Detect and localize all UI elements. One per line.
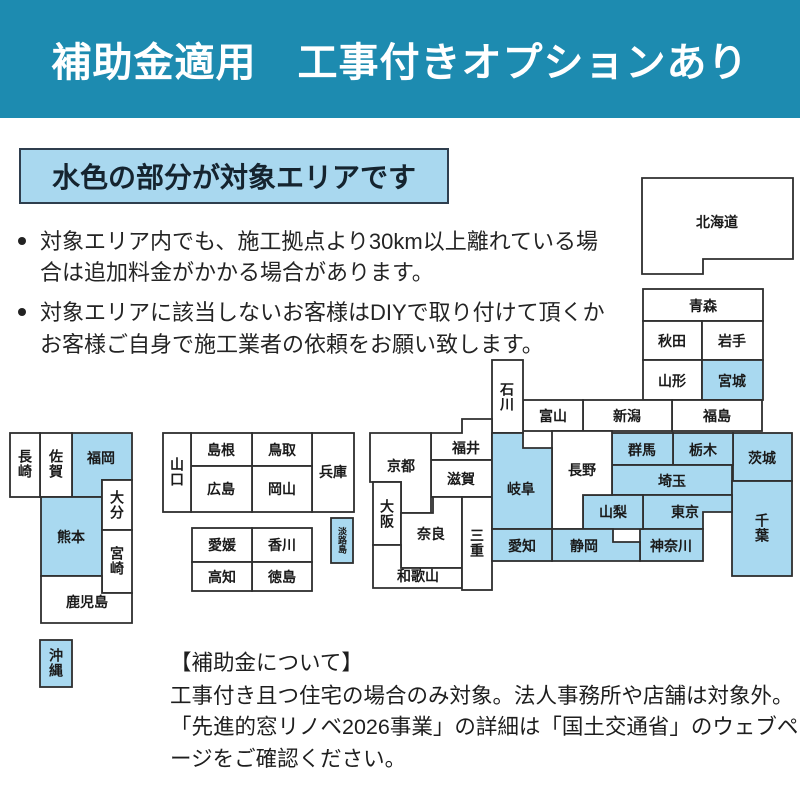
- pref-kochi: 高知: [192, 562, 252, 591]
- pref-ibaraki-label: 茨城: [748, 450, 776, 466]
- pref-yamagata: 山形: [643, 360, 702, 400]
- pref-kyoto-label: 京都: [387, 458, 415, 474]
- pref-osaka-label: 大阪: [379, 498, 395, 529]
- pref-nagasaki: 長崎: [10, 433, 40, 497]
- pref-tottori-label: 鳥取: [268, 442, 297, 458]
- pref-fukuoka-label: 福岡: [86, 450, 115, 466]
- pref-yamaguchi: 山口: [163, 433, 191, 512]
- pref-iwate: 岩手: [702, 321, 763, 360]
- pref-gifu-label: 岐阜: [507, 481, 535, 497]
- pref-shiga: 滋賀: [431, 460, 492, 497]
- subsidy-line: 工事付き且つ住宅の場合のみ対象。法人事務所や店舗は対象外。: [170, 681, 800, 713]
- pref-miyagi-label: 宮城: [718, 373, 746, 389]
- pref-kagoshima-label: 鹿児島: [65, 594, 108, 610]
- pref-ehime-label: 愛媛: [208, 537, 237, 553]
- pref-tokyo: 東京: [643, 495, 732, 529]
- pref-kochi-label: 高知: [208, 569, 236, 585]
- pref-yamagata-label: 山形: [658, 373, 686, 389]
- pref-tokyo-label: 東京: [671, 504, 699, 520]
- pref-chiba-label: 千葉: [754, 512, 770, 543]
- pref-iwate-label: 岩手: [717, 333, 746, 349]
- pref-hokkaido-label: 北海道: [696, 214, 738, 230]
- pref-gifu: 岐阜: [492, 433, 552, 529]
- pref-tokushima: 徳島: [252, 562, 312, 591]
- pref-mie: 三重: [462, 497, 492, 590]
- pref-okinawa-label: 沖縄: [48, 647, 64, 678]
- pref-niigata: 新潟: [583, 400, 672, 431]
- pref-yamanashi-label: 山梨: [599, 504, 628, 520]
- pref-osaka: 大阪: [373, 482, 401, 545]
- pref-kumamoto: 熊本: [41, 497, 102, 576]
- subsidy-heading: 【補助金について】: [170, 648, 800, 680]
- pref-saitama-label: 埼玉: [658, 473, 686, 489]
- pref-oita-label: 大分: [109, 489, 125, 520]
- pref-kagawa-label: 香川: [267, 537, 296, 553]
- pref-shizuoka: 静岡: [552, 529, 640, 561]
- pref-aichi: 愛知: [492, 529, 552, 561]
- pref-miyagi: 宮城: [702, 360, 763, 400]
- pref-oita: 大分: [102, 480, 132, 530]
- pref-kanagawa: 神奈川: [640, 529, 703, 561]
- pref-miyazaki: 宮崎: [102, 530, 132, 593]
- pref-tottori: 鳥取: [252, 433, 312, 466]
- pref-hyogo: 兵庫: [312, 433, 354, 512]
- pref-ehime: 愛媛: [192, 528, 252, 562]
- pref-nagasaki-label: 長崎: [17, 449, 33, 479]
- pref-shizuoka-label: 静岡: [570, 538, 598, 554]
- subsidy-line: 「先進的窓リノベ2026事業」の詳細は「国土交通省」のウェブページをご確認くださ…: [170, 712, 800, 775]
- pref-gunma: 群馬: [612, 433, 673, 465]
- pref-fukui-label: 福井: [451, 440, 480, 456]
- pref-fukushima: 福島: [672, 400, 762, 431]
- pref-okayama: 岡山: [252, 466, 312, 512]
- pref-hyogo-label: 兵庫: [319, 464, 347, 480]
- pref-tokushima-label: 徳島: [267, 569, 296, 585]
- pref-saga: 佐賀: [40, 433, 72, 497]
- pref-kagawa: 香川: [252, 528, 312, 562]
- pref-ibaraki: 茨城: [733, 433, 792, 481]
- pref-tochigi-label: 栃木: [689, 442, 718, 458]
- pref-nara-label: 奈良: [416, 526, 445, 542]
- pref-niigata-label: 新潟: [613, 408, 641, 424]
- pref-akita-label: 秋田: [658, 333, 686, 349]
- pref-hokkaido: 北海道: [642, 178, 793, 274]
- pref-mie-label: 三重: [469, 528, 485, 558]
- pref-shiga-label: 滋賀: [447, 471, 475, 487]
- pref-ishikawa: 石川: [492, 360, 523, 433]
- page: 補助金適用 工事付きオプションあり 水色の部分が対象エリアです 対象エリア内でも…: [0, 0, 800, 800]
- pref-kumamoto-label: 熊本: [57, 529, 86, 545]
- pref-chiba: 千葉: [732, 481, 792, 576]
- pref-hiroshima: 広島: [191, 466, 252, 512]
- pref-yamaguchi-label: 山口: [169, 457, 185, 487]
- pref-shimane: 島根: [191, 433, 252, 466]
- pref-fukui: 福井: [431, 419, 492, 460]
- pref-aichi-label: 愛知: [508, 538, 536, 554]
- pref-aomori-label: 青森: [689, 298, 718, 314]
- pref-wakayama-label: 和歌山: [397, 568, 439, 584]
- pref-fukushima-label: 福島: [702, 408, 731, 424]
- pref-nagano-label: 長野: [568, 462, 596, 478]
- pref-hiroshima-label: 広島: [207, 481, 235, 497]
- pref-saga-label: 佐賀: [48, 448, 64, 479]
- pref-saitama: 埼玉: [612, 465, 732, 495]
- pref-awajishima: 淡路島: [331, 518, 353, 563]
- pref-ishikawa-label: 石川: [499, 382, 515, 412]
- pref-shimane-label: 島根: [207, 442, 236, 458]
- pref-gunma-label: 群馬: [627, 442, 656, 458]
- pref-awajishima-label: 淡路島: [337, 526, 348, 554]
- pref-toyama: 富山: [523, 400, 583, 431]
- pref-aomori: 青森: [643, 289, 763, 321]
- pref-tochigi: 栃木: [673, 433, 733, 465]
- pref-yamanashi: 山梨: [583, 495, 643, 529]
- pref-miyazaki-label: 宮崎: [109, 545, 125, 576]
- pref-toyama-label: 富山: [539, 408, 567, 424]
- pref-akita: 秋田: [643, 321, 702, 360]
- subsidy-note: 【補助金について】 工事付き且つ住宅の場合のみ対象。法人事務所や店舗は対象外。 …: [170, 648, 800, 775]
- pref-kanagawa-label: 神奈川: [650, 538, 692, 554]
- pref-okinawa: 沖縄: [40, 640, 72, 687]
- pref-okayama-label: 岡山: [268, 481, 296, 497]
